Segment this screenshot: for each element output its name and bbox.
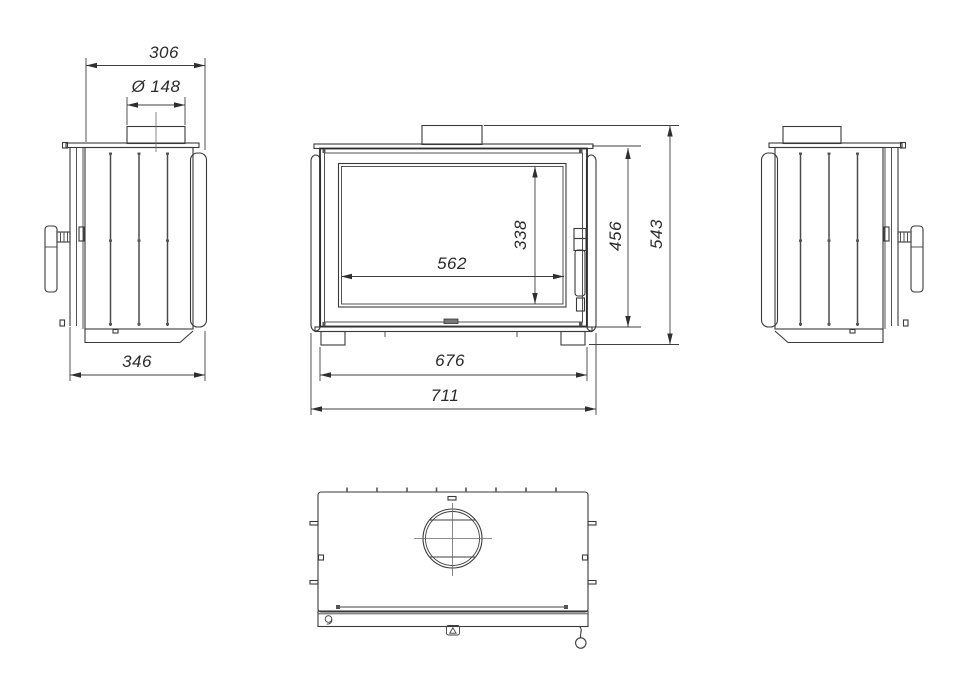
dim-label-glass-width: 562 <box>437 254 467 274</box>
dim-label-overall-width: 711 <box>431 386 460 406</box>
dim-label-glass-height: 338 <box>511 220 531 250</box>
door-handle <box>45 226 57 292</box>
dim-306 <box>86 58 205 150</box>
dim-label-flue-diameter: Ø 148 <box>132 77 181 97</box>
side-ribs <box>799 153 859 327</box>
dim-label-overall-height: 543 <box>647 219 667 249</box>
right-side-view <box>762 127 924 343</box>
drawing-linework <box>0 0 970 699</box>
glass-frame <box>339 164 567 308</box>
right-foot <box>561 332 585 346</box>
base-plate <box>775 329 883 343</box>
dim-label-overall-depth: 346 <box>122 352 152 372</box>
left-side-edge <box>311 155 321 331</box>
front-edge-strip <box>318 611 588 627</box>
left-foot <box>321 332 345 346</box>
dim-label-body-width: 676 <box>435 351 465 371</box>
latch-scroll-detail <box>325 616 332 624</box>
handle-ring <box>576 627 586 649</box>
top-panel <box>318 492 588 612</box>
air-vent <box>444 319 458 324</box>
right-side-edge <box>587 155 597 331</box>
flue-collar <box>422 126 482 145</box>
door-hinge-pins <box>323 150 583 326</box>
door-frame <box>320 149 587 327</box>
front-view <box>311 126 679 416</box>
dim-338 <box>532 167 537 305</box>
flue-collar <box>783 127 841 144</box>
dim-label-body-height: 456 <box>606 221 626 251</box>
dim-label-body-depth: 306 <box>149 43 179 63</box>
rib-ticks <box>346 488 557 493</box>
base-plate <box>85 329 193 343</box>
door-handle <box>911 226 923 292</box>
technical-drawing-canvas: 306 Ø 148 346 562 338 456 543 676 711 <box>0 0 970 699</box>
left-side-view <box>45 58 207 381</box>
door-handle <box>574 229 586 312</box>
top-view <box>310 488 596 649</box>
dim-562 <box>341 274 564 279</box>
plinth <box>315 327 592 332</box>
side-ribs <box>109 153 169 327</box>
